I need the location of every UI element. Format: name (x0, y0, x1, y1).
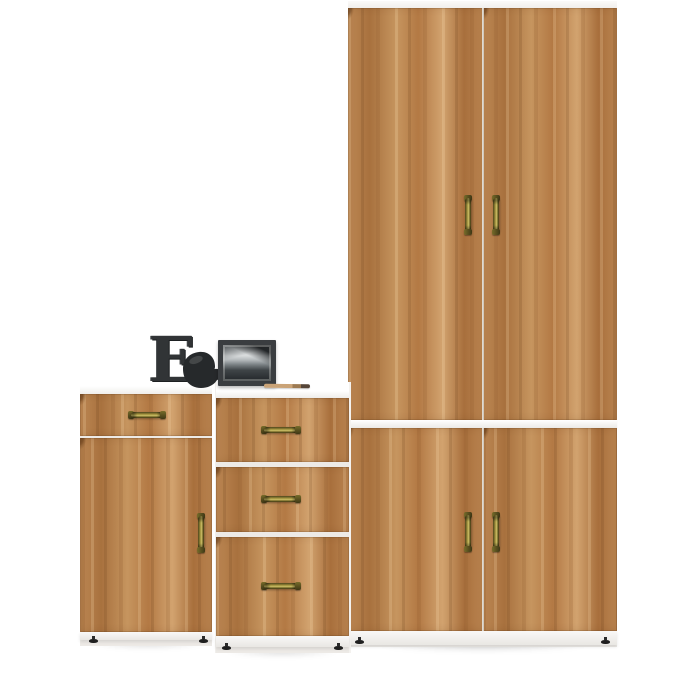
wardrobe-upper-door-gap (482, 8, 484, 420)
door-handle (463, 195, 473, 235)
framed-photo (223, 345, 271, 381)
wardrobe-lower-right-door (483, 428, 618, 631)
wardrobe-foot (601, 640, 610, 644)
wardrobe-upper-section (348, 8, 617, 420)
pencil (264, 384, 310, 388)
chest-drawer-1 (216, 398, 349, 462)
wardrobe-lower-section (348, 428, 617, 631)
drawer-handle (261, 581, 301, 591)
chest-drawer-2 (216, 467, 349, 532)
cabinet-foot (199, 639, 208, 643)
chest-foot (334, 646, 343, 650)
cabinet-foot (89, 639, 98, 643)
wardrobe-upper-right-door (483, 8, 618, 420)
product-photo-scene: E (0, 0, 700, 675)
door-handle (491, 195, 501, 235)
chest-foot (222, 646, 231, 650)
cabinet-left (80, 386, 212, 646)
door-handle (491, 512, 501, 552)
photo-frame (218, 340, 276, 386)
wardrobe-base-panel (348, 631, 617, 645)
wardrobe-tall (348, 1, 617, 647)
wardrobe-lower-door-gap (482, 428, 484, 631)
door-handle (463, 512, 473, 552)
drawer-handle (261, 425, 301, 435)
drawer-handle (261, 494, 301, 504)
door-handle (196, 513, 206, 553)
wardrobe-foot (355, 640, 364, 644)
cabinet-base-panel (80, 632, 212, 640)
drawer-handle (128, 410, 166, 420)
chest-drawer-3 (216, 537, 349, 636)
chest-base-panel (216, 636, 349, 647)
cabinet-drawer (80, 394, 212, 436)
chest-of-drawers (215, 382, 351, 653)
wardrobe-middle-divider (348, 420, 617, 428)
cabinet-door (80, 438, 212, 632)
